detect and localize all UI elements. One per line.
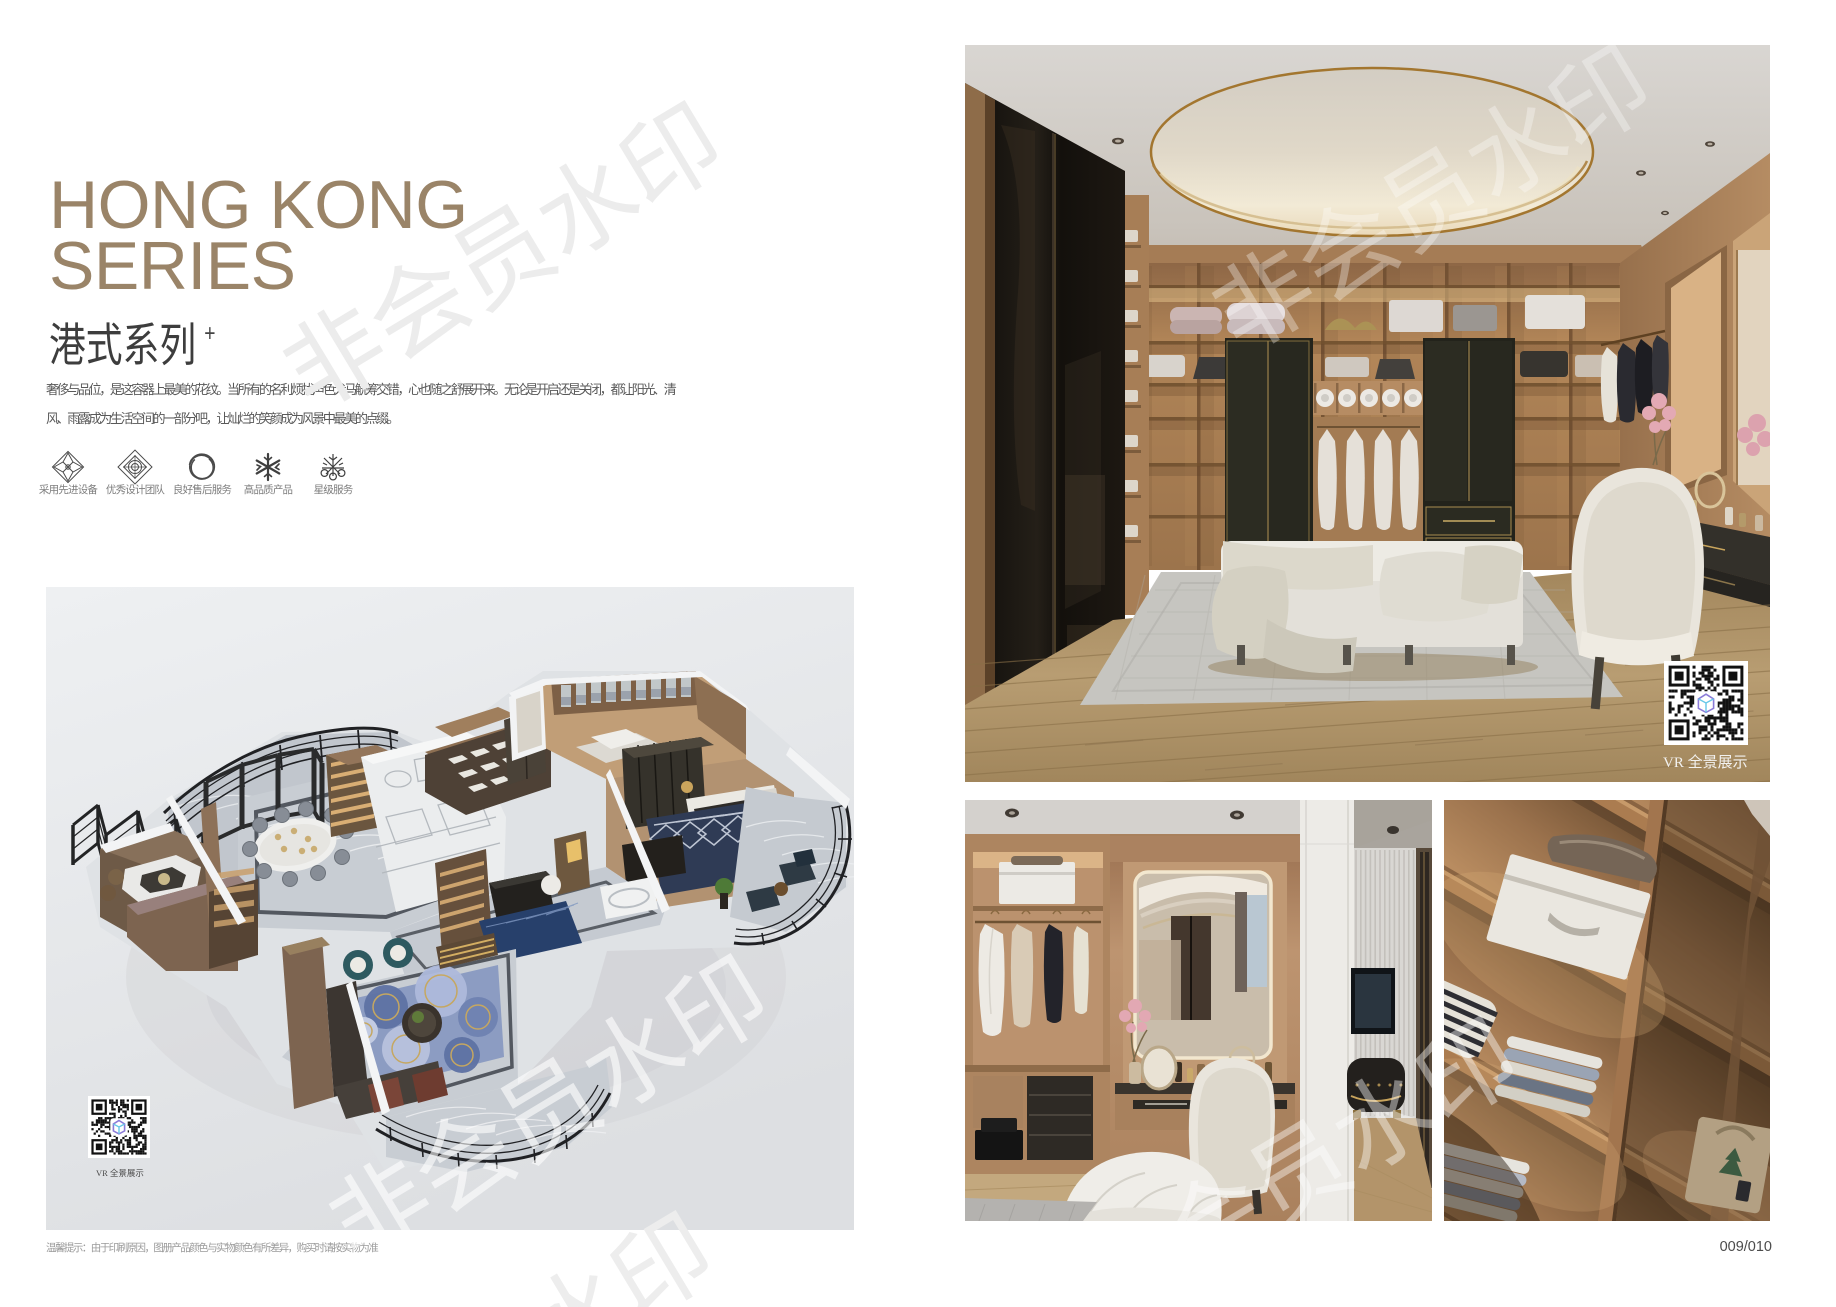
svg-text:VR 全景展示: VR 全景展示 xyxy=(1663,751,1748,772)
svg-text:VR 全景展示: VR 全景展示 xyxy=(96,1167,144,1179)
